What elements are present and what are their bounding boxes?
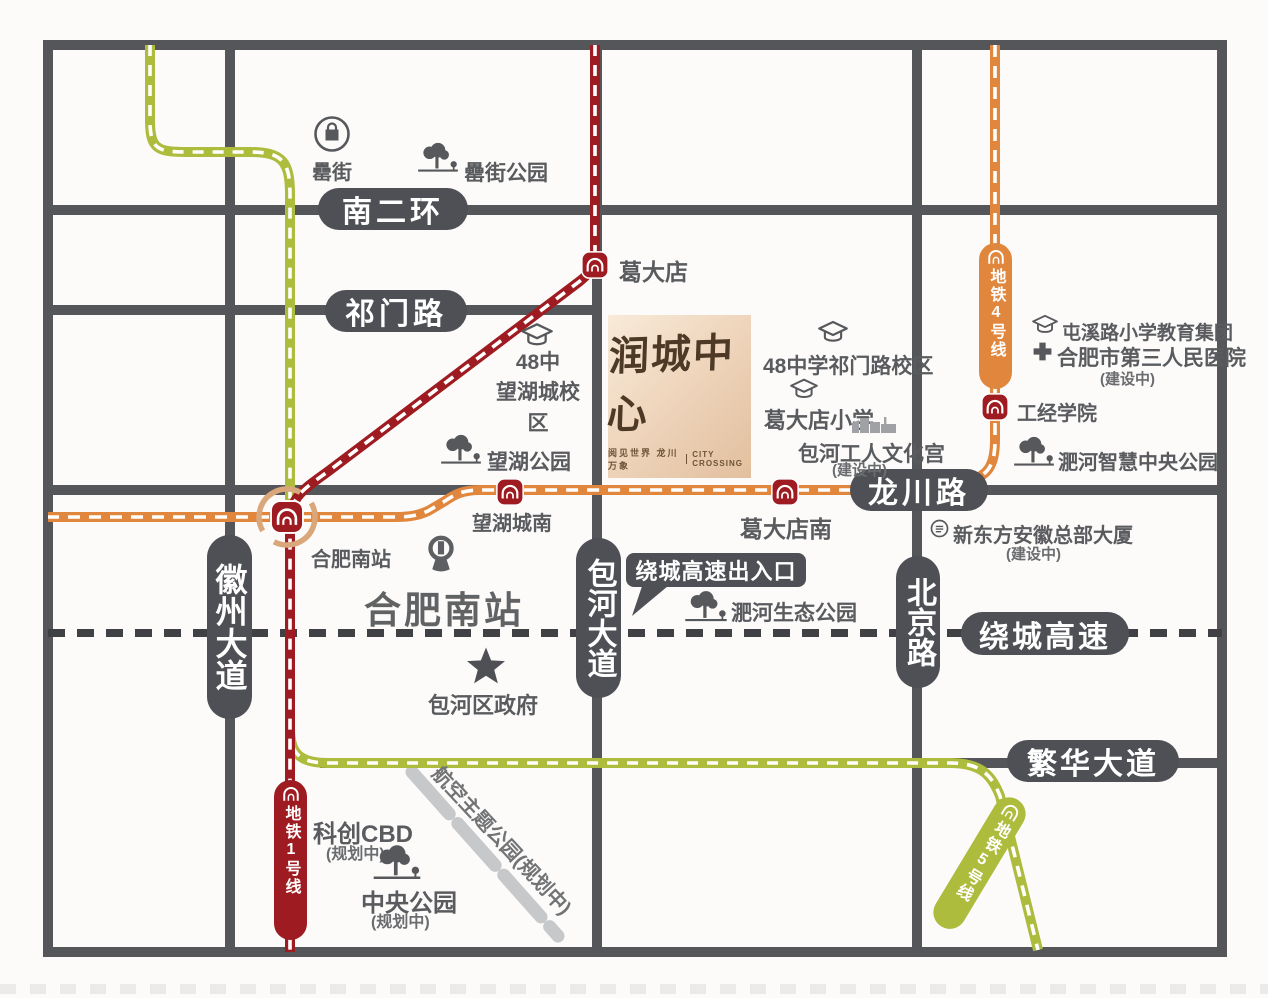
road-pill-huizhou-avenue: 徽州大道: [207, 535, 252, 719]
poi-label-school48-wanghu: 48中 望湖城校区: [492, 348, 584, 439]
road-pill-beijing-road: 北京路: [896, 556, 940, 688]
road-pill-ring-expressway: 绕城高速: [961, 612, 1129, 655]
school-cap-icon: [818, 320, 848, 344]
tree-icon: [438, 434, 484, 466]
road-pill-baohe-avenue: 包河大道: [576, 538, 621, 698]
photo-edge-texture: [0, 984, 1268, 994]
poi-label-tunxi-primary-group: 屯溪路小学教育集团: [1062, 318, 1233, 345]
poi-label-hefei-south-railway: 合肥南站: [364, 580, 524, 634]
poi-label-wanghu-park: 望湖公园: [487, 446, 571, 476]
project-logo-panel: 润城中心 阅见世界 龙川万象 CITY CROSSING: [608, 315, 751, 478]
building-icon: [851, 414, 897, 434]
metro-line1-pill: 地铁1号线: [274, 780, 307, 940]
station-label-gongjing-college: 工经学院: [1017, 397, 1097, 426]
road-pill-fanhua-avenue: 繁华大道: [1007, 740, 1179, 782]
metro-icon: [282, 786, 300, 802]
road-pill-south-second-ring: 南二环: [318, 188, 468, 230]
tree-icon: [370, 844, 424, 882]
project-name: 润城中心: [606, 319, 753, 440]
project-tagline-cn: 阅见世界 龙川万象: [608, 446, 680, 472]
project-tagline-en: CITY CROSSING: [692, 450, 751, 468]
station-label-gedadian: 葛大店: [619, 253, 688, 287]
star-icon: [464, 646, 508, 688]
poi-label-baohe-district-gov: 包河区政府: [428, 688, 538, 720]
company-logo-icon: [930, 519, 949, 538]
tree-icon: [415, 142, 461, 174]
station-icon-gedadian-south: [771, 478, 799, 506]
station-icon-gongjing-college: [981, 393, 1009, 421]
hospital-cross-icon: [1032, 341, 1053, 362]
location-map: 润城中心 阅见世界 龙川万象 CITY CROSSING 南二环 祁门路 龙川路…: [0, 0, 1268, 998]
metro-line1-label: 地铁1号线: [283, 805, 299, 896]
note-planned: (规划中): [371, 908, 430, 932]
station-label-wanghucheng-south: 望湖城南: [472, 507, 552, 536]
station-label-gedadian-south: 葛大店南: [740, 510, 832, 544]
project-tagline: 阅见世界 龙川万象 CITY CROSSING: [608, 446, 751, 472]
station-icon-wanghucheng-south: [496, 478, 524, 506]
poi-label-lei-street: 罍街: [312, 156, 352, 185]
tree-icon: [682, 590, 730, 624]
poi-label-school48-qimen: 48中学祁门路校区: [763, 350, 933, 380]
metro-line4-label: 地铁4号线: [988, 268, 1004, 359]
school-cap-icon: [790, 378, 818, 400]
tagline-divider: [686, 454, 687, 464]
school-cap-icon: [1032, 314, 1058, 335]
railway-logo-icon: [420, 533, 462, 581]
road-pill-qimen-road: 祁门路: [325, 290, 467, 332]
metro-icon: [987, 249, 1005, 265]
school48-wanghu-line1: 48中: [492, 348, 584, 378]
note-under-construction: (建设中): [1006, 543, 1061, 564]
map-line-artwork: [0, 0, 1268, 998]
tree-icon: [1011, 436, 1057, 468]
poi-label-lei-street-park: 罍街公园: [464, 157, 548, 187]
expressway-exit-callout: 绕城高速出入口: [626, 553, 806, 587]
note-under-construction: (建设中): [832, 459, 887, 480]
school48-wanghu-line2: 望湖城校区: [492, 378, 584, 439]
poi-label-feihe-eco-park: 淝河生态公园: [731, 597, 857, 627]
shopping-bag-icon: [312, 114, 352, 154]
station-icon-hefei-south-interchange: [270, 500, 304, 534]
metro-line4-pill: 地铁4号线: [979, 243, 1012, 389]
school-cap-icon: [521, 322, 553, 348]
map-border: [48, 45, 1222, 952]
station-icon-gedadian: [581, 251, 609, 279]
note-under-construction: (建设中): [1100, 368, 1155, 389]
poi-label-feihe-smart-central-park: 淝河智慧中央公园: [1058, 446, 1218, 475]
station-label-hefei-south-metro: 合肥南站: [311, 543, 391, 572]
